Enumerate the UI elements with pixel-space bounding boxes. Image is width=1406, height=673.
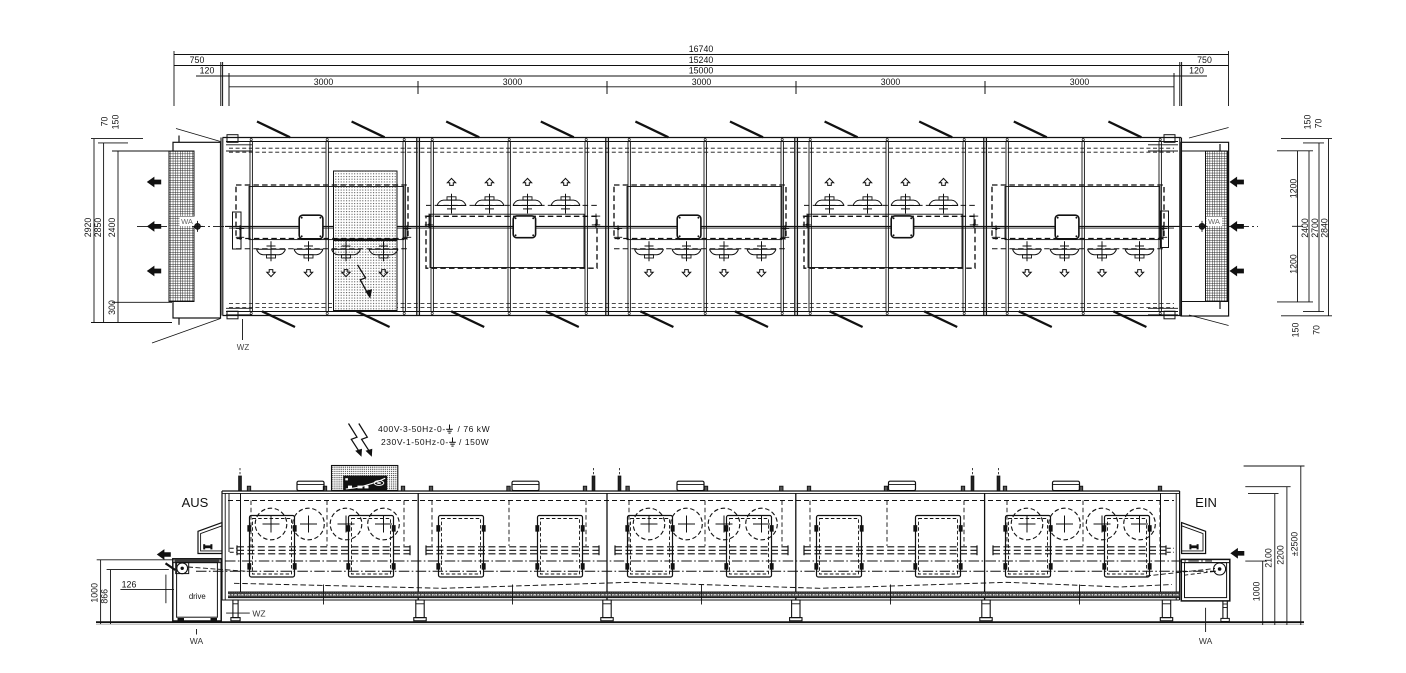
- svg-text:16740: 16740: [689, 44, 714, 54]
- svg-text:drive: drive: [189, 592, 206, 601]
- svg-text:150: 150: [1291, 323, 1301, 338]
- svg-text:750: 750: [1197, 55, 1212, 65]
- svg-text:2100: 2100: [1264, 548, 1274, 568]
- svg-text:2700: 2700: [1310, 218, 1320, 238]
- svg-text:150: 150: [111, 115, 121, 130]
- svg-text:70: 70: [1314, 119, 1324, 129]
- svg-text:2840: 2840: [1320, 218, 1330, 238]
- svg-text:15000: 15000: [689, 66, 714, 76]
- svg-text:WA: WA: [190, 636, 204, 646]
- svg-text:1200: 1200: [1289, 179, 1299, 199]
- svg-text:/ 76 kW: / 76 kW: [458, 424, 491, 434]
- svg-text:400V-3-50Hz-0-: 400V-3-50Hz-0-: [378, 424, 446, 434]
- svg-text:3000: 3000: [314, 77, 334, 87]
- svg-text:300: 300: [107, 300, 117, 315]
- svg-text:EIN: EIN: [1195, 495, 1217, 510]
- svg-text:±2500: ±2500: [1290, 532, 1300, 557]
- svg-text:1000: 1000: [89, 583, 99, 603]
- svg-text:3000: 3000: [503, 77, 523, 87]
- svg-text:3000: 3000: [1070, 77, 1090, 87]
- svg-text:WA: WA: [181, 217, 193, 226]
- svg-text:2200: 2200: [1276, 545, 1286, 565]
- svg-text:120: 120: [200, 66, 215, 76]
- svg-text:WA: WA: [1199, 636, 1213, 646]
- svg-text:AUS: AUS: [182, 495, 209, 510]
- svg-text:/ 150W: / 150W: [459, 437, 489, 447]
- svg-text:70: 70: [1312, 325, 1322, 335]
- svg-text:3000: 3000: [692, 77, 712, 87]
- svg-text:2850: 2850: [93, 218, 103, 238]
- svg-text:3000: 3000: [881, 77, 901, 87]
- svg-text:2920: 2920: [83, 218, 93, 238]
- svg-text:1000: 1000: [1251, 582, 1261, 602]
- svg-text:WZ: WZ: [252, 608, 265, 618]
- svg-text:1200: 1200: [1289, 254, 1299, 274]
- svg-text:70: 70: [100, 117, 110, 127]
- svg-text:2400: 2400: [107, 218, 117, 238]
- svg-text:866: 866: [99, 589, 109, 604]
- svg-text:2400: 2400: [1300, 218, 1310, 238]
- svg-text:WA: WA: [1208, 217, 1220, 226]
- svg-text:WZ: WZ: [237, 343, 250, 352]
- svg-text:120: 120: [1189, 66, 1204, 76]
- svg-text:15240: 15240: [689, 55, 714, 65]
- svg-text:750: 750: [190, 55, 205, 65]
- svg-text:150: 150: [1303, 115, 1313, 130]
- svg-text:230V-1-50Hz-0-: 230V-1-50Hz-0-: [381, 437, 449, 447]
- svg-text:126: 126: [122, 579, 137, 589]
